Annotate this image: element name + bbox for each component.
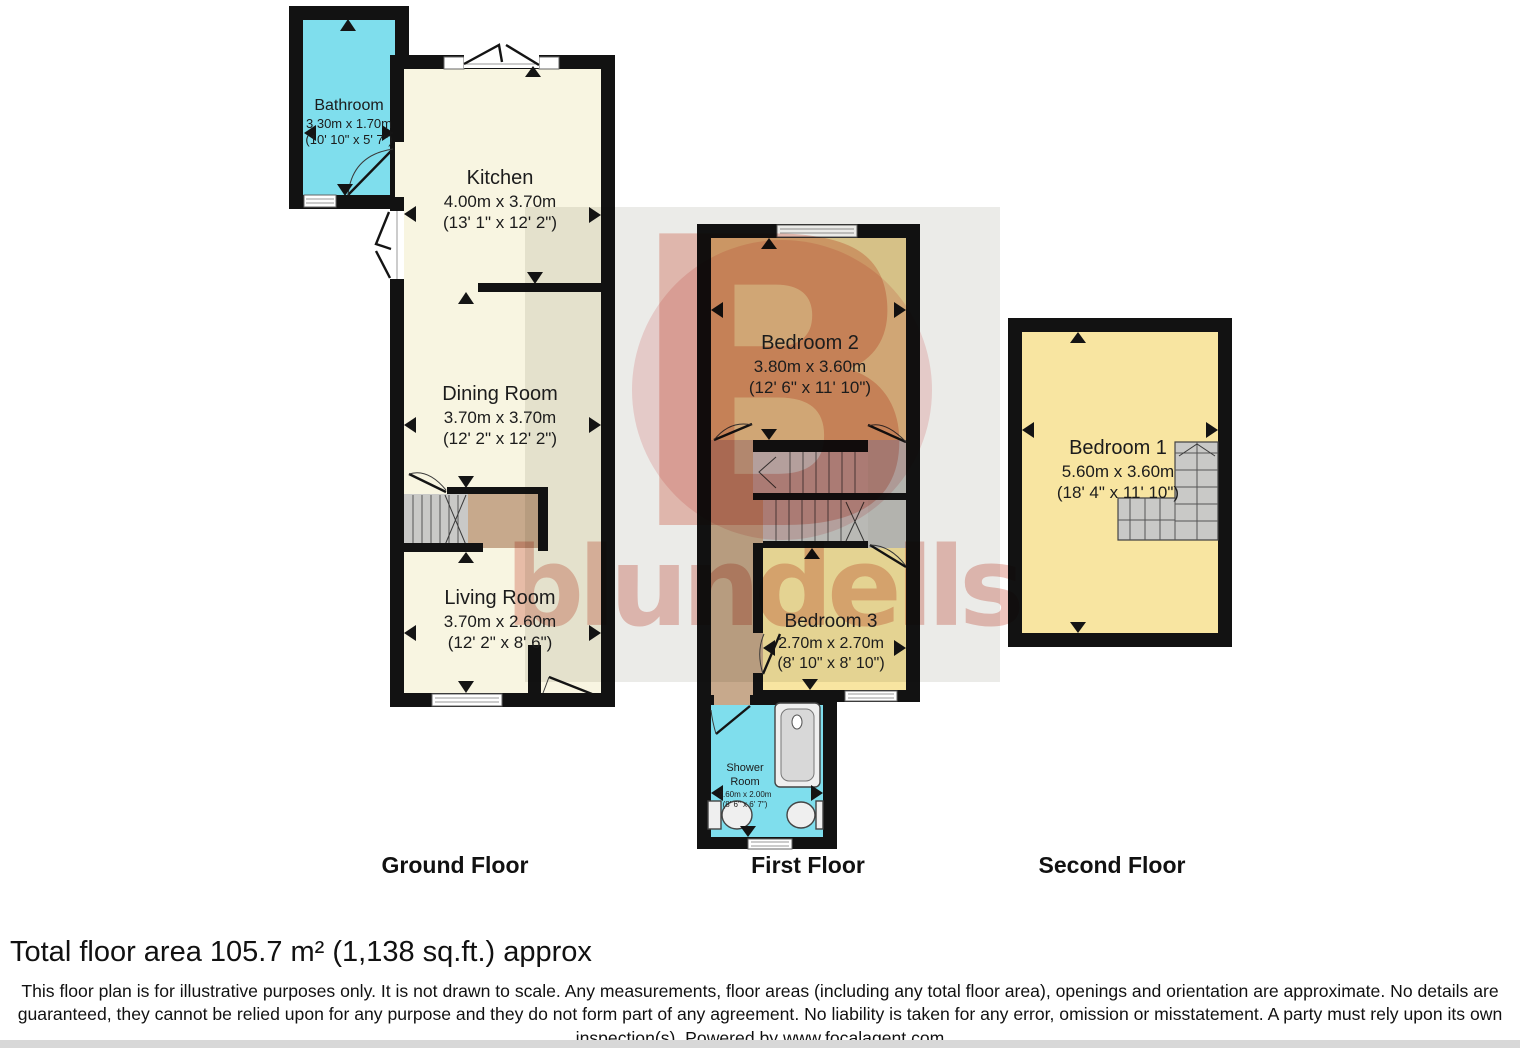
room-size-imperial: (12' 6" x 11' 10")	[712, 377, 908, 398]
disclaimer-text: This floor plan is for illustrative purp…	[0, 980, 1520, 1048]
bathroom-label: Bathroom 3.30m x 1.70m (10' 10" x 5' 7")	[289, 96, 409, 149]
window	[748, 839, 792, 849]
bathtub-icon	[775, 703, 820, 787]
room-size-metric: 3.30m x 1.70m	[289, 116, 409, 132]
door-swing	[376, 212, 391, 249]
living-room-label: Living Room 3.70m x 2.60m (12' 2" x 8' 6…	[400, 586, 600, 654]
room-size-metric: 2.70m x 2.70m	[756, 634, 906, 654]
room-name: Bedroom 1	[1020, 436, 1216, 461]
room-name: Living Room	[400, 586, 600, 611]
room-size-imperial: (13' 1" x 12' 2")	[400, 212, 600, 233]
room-name: Kitchen	[400, 166, 600, 191]
room-name: Shower Room	[711, 762, 779, 790]
room-size-imperial: (12' 2" x 8' 6")	[400, 632, 600, 653]
room-size-metric: 3.80m x 3.60m	[712, 356, 908, 377]
room-size-imperial: (10' 10" x 5' 7")	[289, 132, 409, 148]
window	[304, 195, 336, 207]
window	[539, 57, 559, 69]
total-floor-area: Total floor area 105.7 m² (1,138 sq.ft.)…	[10, 936, 592, 969]
room-size-imperial: (12' 2" x 12' 2")	[400, 428, 600, 449]
floorplan-page: B blundells Bathroom 3.30m x 1.70m (10' …	[0, 0, 1520, 1048]
room-name: Bedroom 3	[756, 610, 906, 634]
sink-icon	[787, 801, 823, 829]
window	[432, 694, 502, 706]
second-floor-caption: Second Floor	[987, 852, 1237, 879]
dining-room-label: Dining Room 3.70m x 3.70m (12' 2" x 12' …	[400, 382, 600, 450]
room-name: Dining Room	[400, 382, 600, 407]
kitchen-label: Kitchen 4.00m x 3.70m (13' 1" x 12' 2")	[400, 166, 600, 234]
room-size-imperial: (8' 10" x 8' 10")	[756, 654, 906, 674]
bedroom1-label: Bedroom 1 5.60m x 3.60m (18' 4" x 11' 10…	[1020, 436, 1216, 504]
bedroom2-label: Bedroom 2 3.80m x 3.60m (12' 6" x 11' 10…	[712, 331, 908, 399]
room-size-imperial: (18' 4" x 11' 10")	[1020, 482, 1216, 503]
room-size-metric: 2.60m x 2.00m	[711, 790, 779, 800]
first-floor-caption: First Floor	[683, 852, 933, 879]
room-size-metric: 3.70m x 3.70m	[400, 407, 600, 428]
door-swing	[376, 251, 390, 278]
bedroom3-label: Bedroom 3 2.70m x 2.70m (8' 10" x 8' 10"…	[756, 610, 906, 674]
room-name: Bathroom	[289, 96, 409, 116]
room-name: Bedroom 2	[712, 331, 908, 356]
window	[444, 57, 464, 69]
room-size-metric: 5.60m x 3.60m	[1020, 461, 1216, 482]
bottom-divider	[0, 1040, 1520, 1048]
room-size-metric: 4.00m x 3.70m	[400, 191, 600, 212]
room-size-metric: 3.70m x 2.60m	[400, 611, 600, 632]
window	[845, 691, 897, 701]
shower-room-label: Shower Room 2.60m x 2.00m (8' 6" x 6' 7"…	[711, 762, 779, 810]
ground-floor-caption: Ground Floor	[330, 852, 580, 879]
room-size-imperial: (8' 6" x 6' 7")	[711, 800, 779, 810]
